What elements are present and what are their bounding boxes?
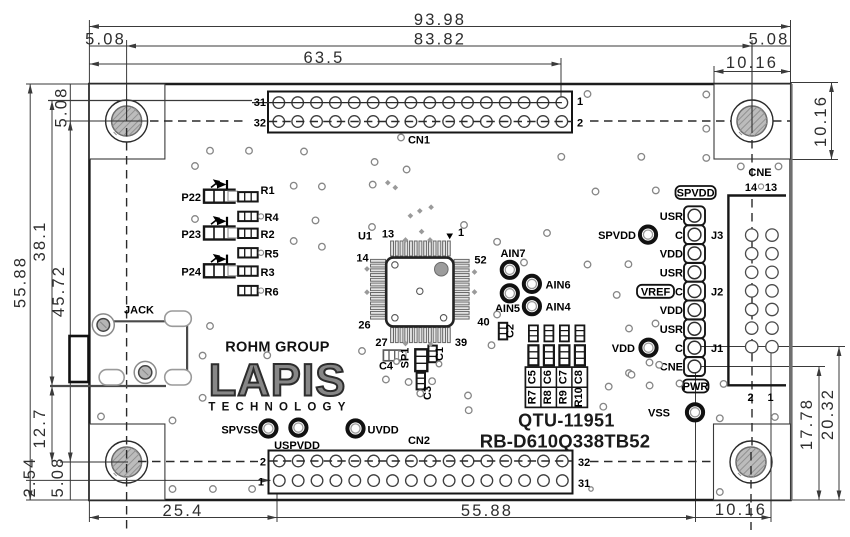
svg-text:AIN6: AIN6 [546, 279, 571, 291]
svg-text:39: 39 [455, 337, 467, 349]
svg-text:45.72: 45.72 [50, 265, 68, 317]
svg-text:C2: C2 [505, 324, 517, 338]
svg-text:SPVDD: SPVDD [598, 230, 636, 242]
svg-text:U1: U1 [358, 231, 372, 243]
svg-text:USR: USR [660, 211, 683, 223]
svg-text:13: 13 [382, 229, 394, 241]
svg-text:5.08: 5.08 [49, 457, 67, 498]
svg-text:VDD: VDD [660, 249, 683, 261]
svg-text:55.88: 55.88 [12, 256, 30, 308]
svg-text:USR: USR [660, 268, 683, 280]
svg-text:1: 1 [258, 477, 264, 489]
svg-text:P22: P22 [181, 192, 201, 204]
svg-text:14: 14 [745, 182, 758, 194]
svg-text:R8: R8 [542, 390, 554, 404]
svg-text:C8: C8 [573, 370, 585, 384]
svg-text:ROHM GROUP: ROHM GROUP [225, 340, 330, 356]
svg-text:SPVSS: SPVSS [221, 425, 258, 437]
svg-text:PWR: PWR [683, 381, 709, 393]
svg-text:VDD: VDD [660, 305, 683, 317]
svg-text:R1: R1 [261, 185, 275, 197]
svg-text:5.08: 5.08 [53, 87, 71, 128]
svg-text:TECHNOLOGY: TECHNOLOGY [208, 402, 351, 414]
svg-text:C7: C7 [558, 370, 570, 384]
svg-text:C: C [675, 286, 683, 298]
svg-text:12.7: 12.7 [31, 408, 49, 449]
svg-text:CN1: CN1 [408, 135, 430, 147]
svg-text:2: 2 [577, 118, 583, 130]
svg-text:2: 2 [747, 392, 753, 404]
svg-text:C6: C6 [542, 370, 554, 384]
svg-text:25.4: 25.4 [163, 502, 204, 520]
svg-text:P23: P23 [181, 229, 201, 241]
svg-text:R9: R9 [558, 390, 570, 404]
svg-text:31: 31 [254, 97, 266, 109]
svg-text:26: 26 [358, 320, 370, 332]
svg-text:CNE: CNE [660, 362, 683, 374]
svg-text:20.32: 20.32 [819, 388, 837, 440]
svg-text:RB-D610Q338TB52: RB-D610Q338TB52 [480, 431, 651, 452]
svg-text:17.78: 17.78 [798, 398, 816, 450]
svg-text:P24: P24 [181, 267, 201, 279]
svg-text:13: 13 [765, 182, 777, 194]
svg-text:5.08: 5.08 [749, 31, 790, 49]
svg-text:38.1: 38.1 [31, 221, 49, 262]
svg-text:R10: R10 [573, 387, 585, 407]
svg-text:10.16: 10.16 [812, 95, 830, 147]
svg-text:LAPIS: LAPIS [209, 355, 347, 406]
svg-text:1: 1 [577, 96, 583, 108]
svg-text:USR: USR [660, 324, 683, 336]
svg-text:AIN7: AIN7 [500, 248, 525, 260]
svg-text:R3: R3 [261, 267, 275, 279]
svg-text:83.82: 83.82 [414, 31, 466, 49]
svg-text:J3: J3 [711, 230, 723, 242]
svg-text:SPVDD: SPVDD [677, 188, 715, 200]
svg-text:63.5: 63.5 [304, 49, 345, 67]
svg-text:R6: R6 [265, 286, 279, 298]
svg-text:2: 2 [260, 457, 266, 469]
svg-text:1: 1 [767, 392, 773, 404]
svg-text:R5: R5 [265, 249, 279, 261]
svg-text:VREF: VREF [641, 286, 671, 298]
svg-text:40: 40 [477, 317, 489, 329]
svg-text:UVDD: UVDD [368, 425, 399, 437]
svg-text:CNE: CNE [748, 167, 771, 179]
svg-text:93.98: 93.98 [414, 11, 466, 29]
svg-text:R7: R7 [527, 390, 539, 404]
svg-text:QTU-11951: QTU-11951 [518, 411, 615, 431]
svg-text:VSS: VSS [648, 408, 670, 420]
svg-text:52: 52 [474, 255, 486, 267]
svg-text:CN2: CN2 [408, 435, 430, 447]
svg-text:USPVDD: USPVDD [274, 440, 320, 452]
svg-text:AIN4: AIN4 [546, 302, 572, 314]
svg-text:J1: J1 [711, 343, 723, 355]
svg-text:5.08: 5.08 [85, 31, 126, 49]
svg-text:C5: C5 [527, 370, 539, 384]
svg-text:J2: J2 [711, 287, 723, 299]
svg-text:JACK: JACK [124, 305, 154, 317]
svg-text:32: 32 [254, 118, 266, 130]
svg-text:C4: C4 [379, 361, 394, 373]
svg-text:VDD: VDD [612, 343, 635, 355]
svg-text:R4: R4 [265, 212, 280, 224]
svg-text:10.16: 10.16 [715, 501, 767, 519]
svg-text:C1: C1 [434, 347, 446, 361]
svg-text:27: 27 [375, 337, 387, 349]
svg-text:C: C [675, 230, 683, 242]
svg-text:2.54: 2.54 [21, 457, 39, 498]
svg-text:32: 32 [578, 457, 590, 469]
svg-text:R2: R2 [261, 229, 275, 241]
svg-text:14: 14 [356, 253, 369, 265]
svg-text:55.88: 55.88 [461, 502, 513, 520]
svg-text:C: C [675, 343, 683, 355]
svg-text:SP1: SP1 [400, 348, 412, 369]
